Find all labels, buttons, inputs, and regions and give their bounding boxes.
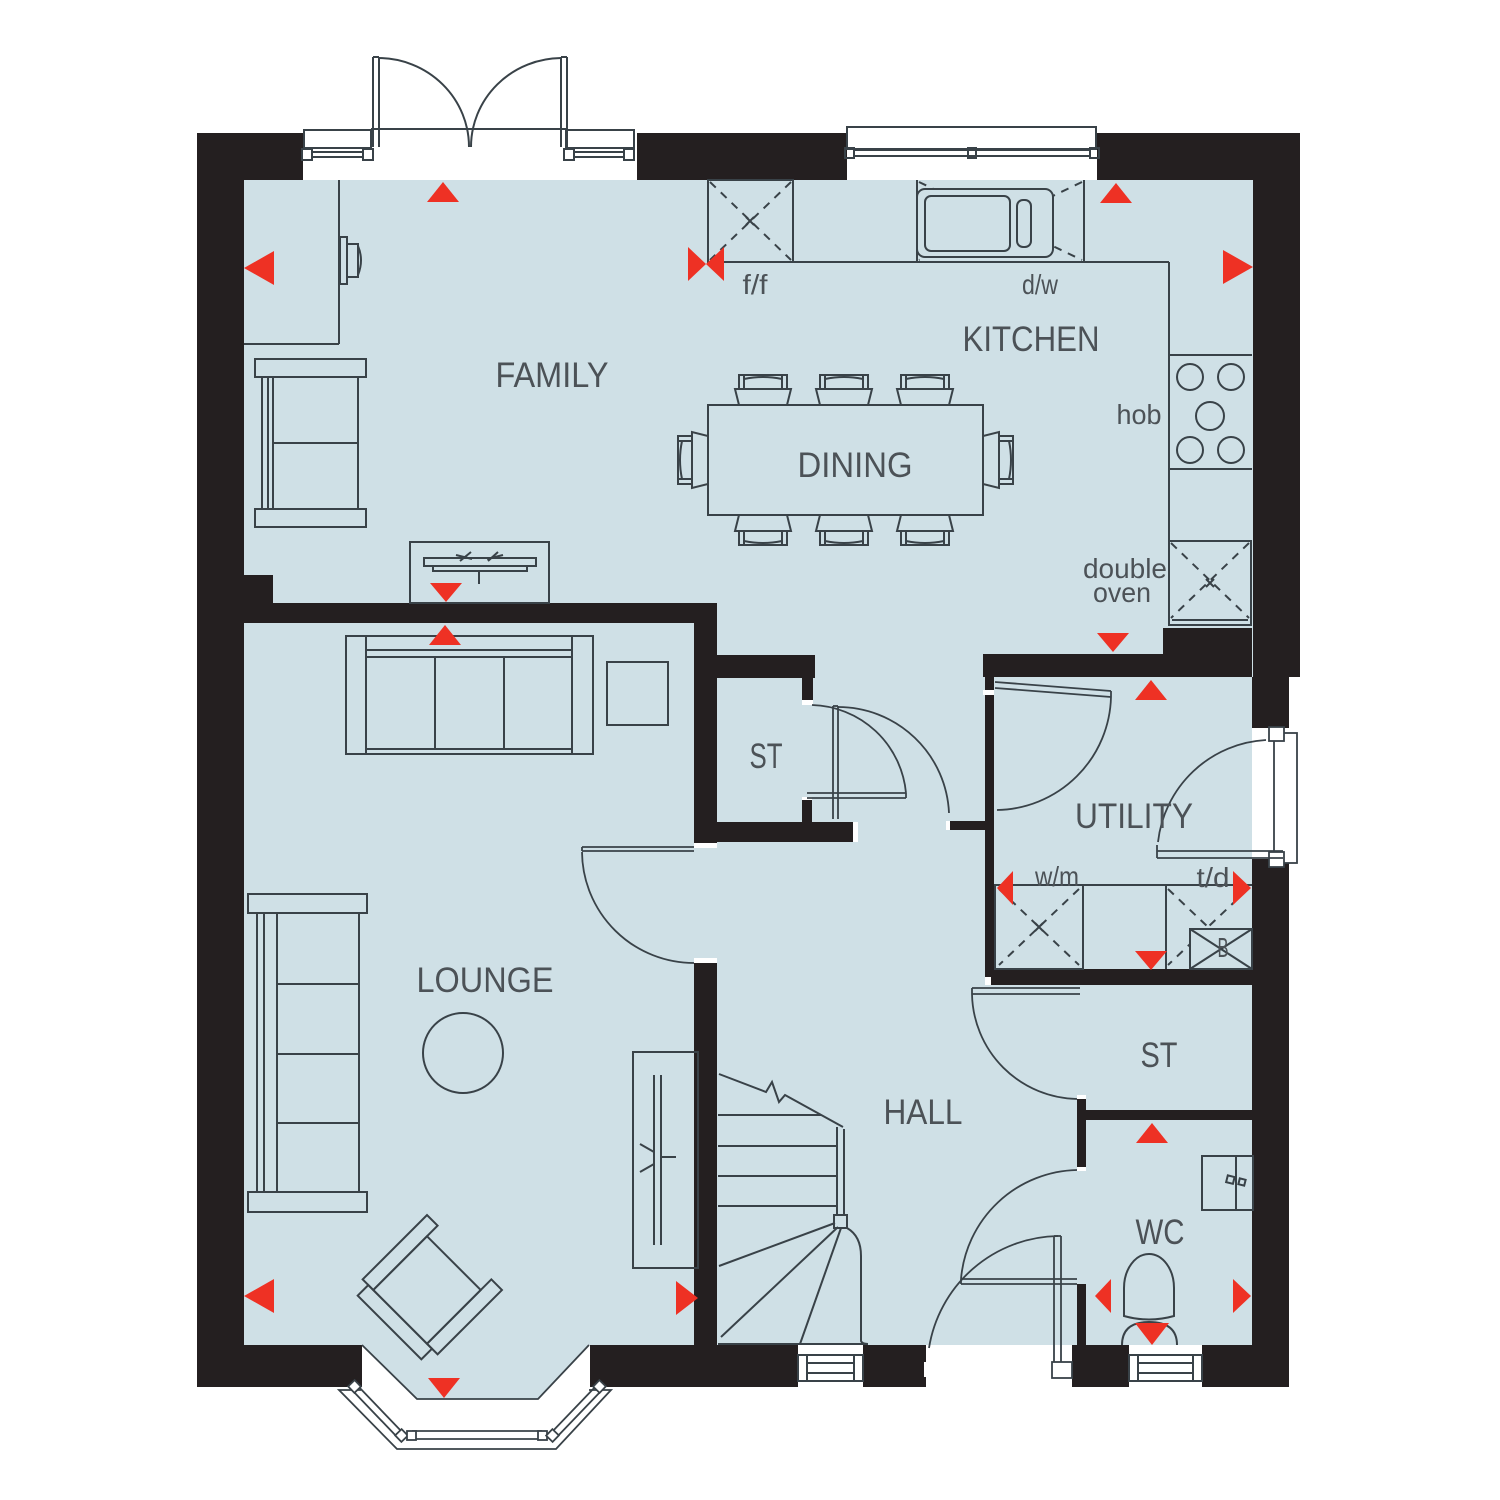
svg-text:LOUNGE: LOUNGE	[417, 961, 554, 1000]
svg-text:f/f: f/f	[743, 269, 768, 300]
svg-text:t/d: t/d	[1197, 862, 1230, 893]
svg-text:B: B	[1218, 932, 1229, 963]
svg-text:DINING: DINING	[798, 446, 913, 485]
svg-text:ST: ST	[750, 737, 783, 776]
svg-text:WC: WC	[1136, 1213, 1185, 1252]
svg-text:d/w: d/w	[1022, 269, 1059, 300]
svg-text:FAMILY: FAMILY	[496, 356, 609, 395]
svg-text:ST: ST	[1141, 1036, 1178, 1075]
svg-text:hob: hob	[1117, 399, 1162, 430]
svg-text:UTILITY: UTILITY	[1075, 797, 1193, 836]
svg-text:oven: oven	[1093, 577, 1151, 608]
svg-text:w/m: w/m	[1034, 861, 1079, 892]
svg-text:HALL: HALL	[884, 1093, 963, 1132]
svg-text:KITCHEN: KITCHEN	[963, 320, 1100, 359]
